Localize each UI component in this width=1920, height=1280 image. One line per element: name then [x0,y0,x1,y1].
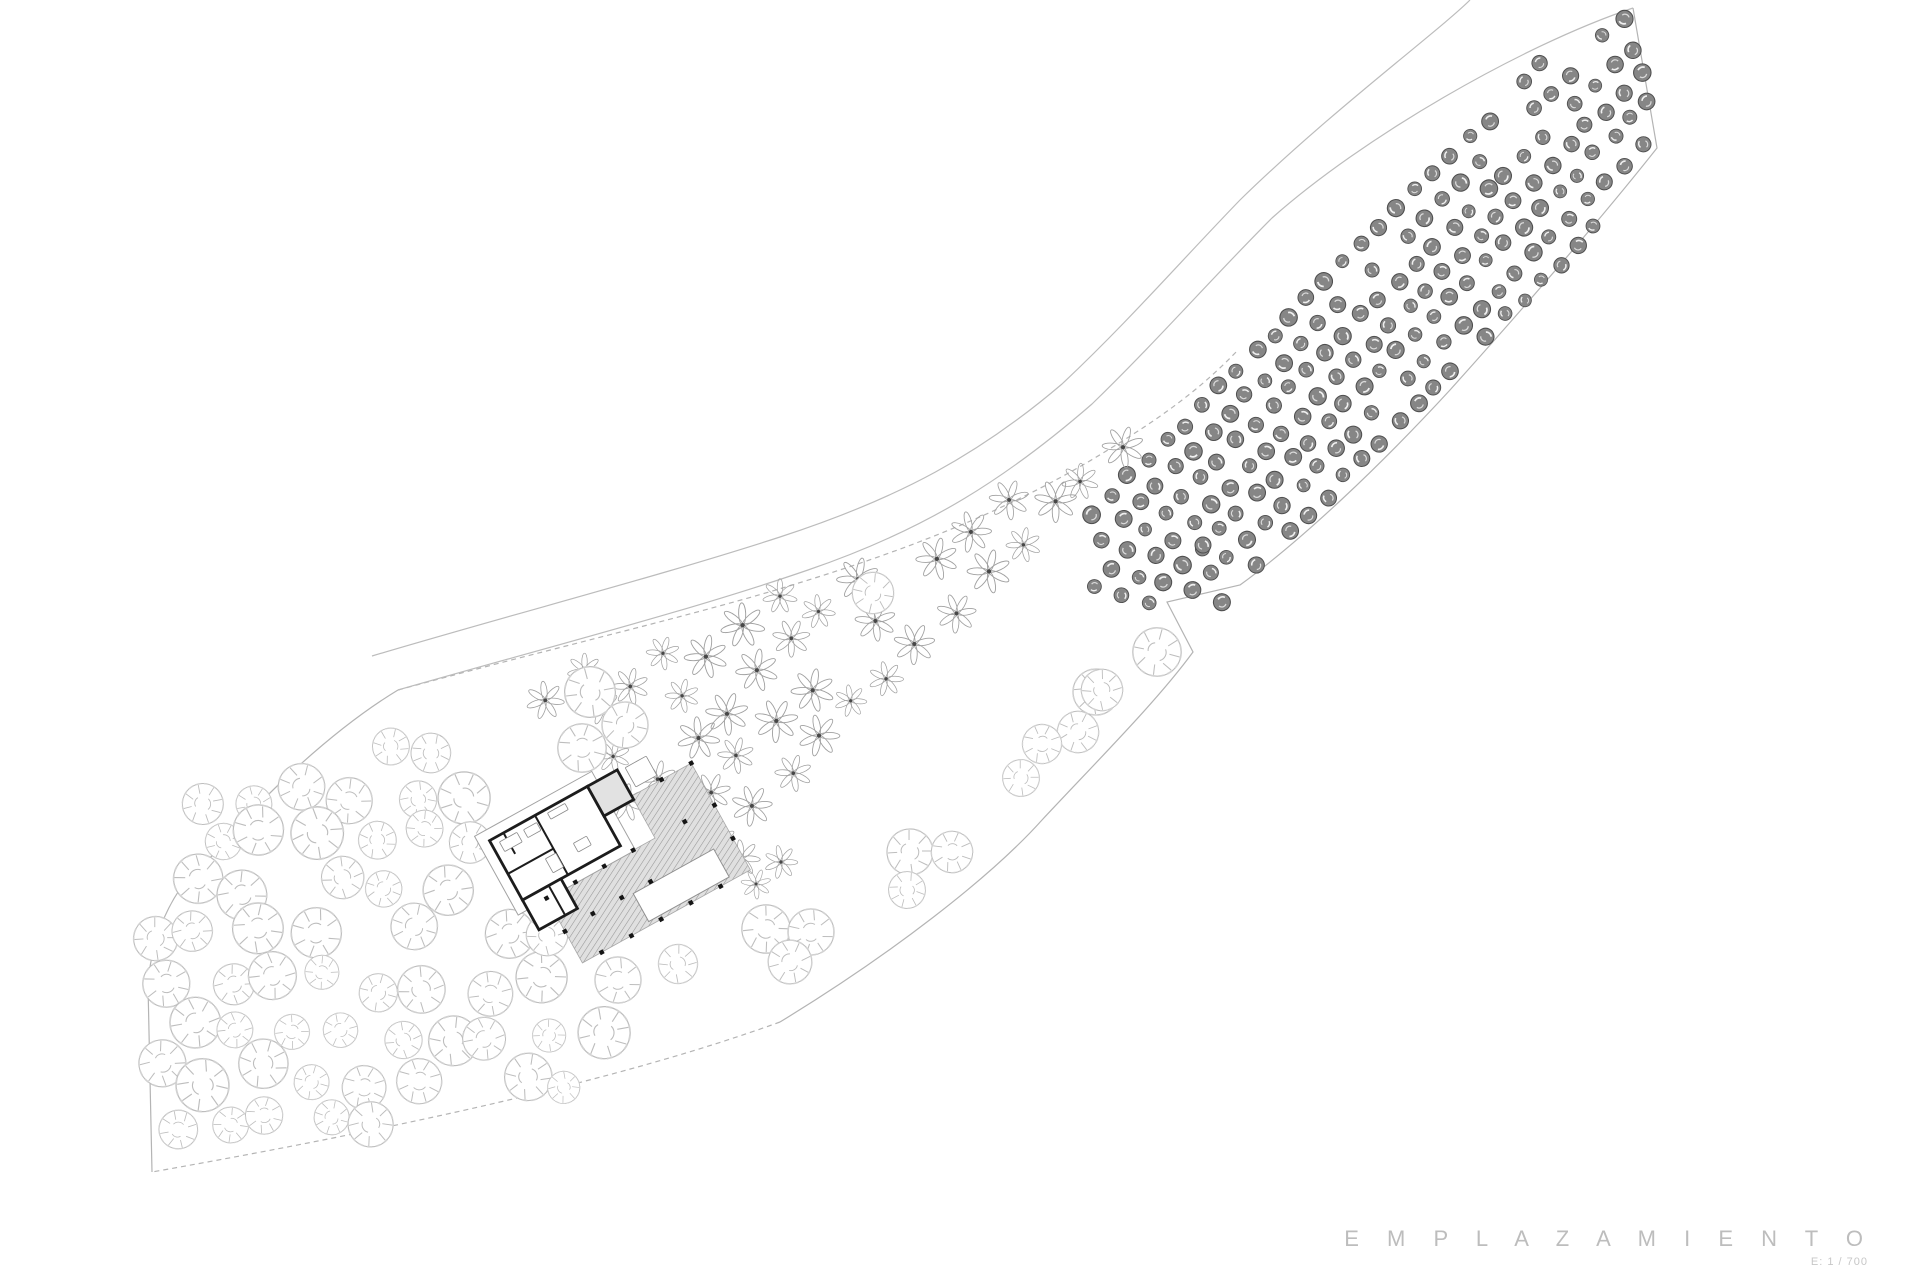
road-lower-edge [398,8,1633,690]
site-plan-canvas: E M P L A Z A M I E N T O E: 1 / 700 [0,0,1920,1280]
tree-symbol [1131,492,1151,512]
tree-symbol [1502,190,1524,212]
tree-symbol [1193,395,1212,414]
tree-symbol [1583,216,1603,236]
tree-symbol [1102,560,1120,578]
tree-symbol [1616,157,1634,175]
tree-symbol [554,720,609,775]
tree-symbol [1254,440,1278,464]
tree-symbol [1245,414,1266,435]
tree-symbol [569,998,639,1068]
tree-symbol [1145,476,1166,497]
tree-symbol [1140,594,1158,612]
tree-symbol [1280,521,1300,541]
tree-symbol [1422,163,1443,184]
tree-symbol [886,869,928,911]
tree-symbol [1220,478,1240,498]
tree-symbol [1277,305,1301,329]
tree-symbol [1226,361,1245,380]
drawing-title: E M P L A Z A M I E N T O [1344,1226,1874,1252]
tree-symbol [1265,397,1283,415]
tree-symbol [1505,264,1523,282]
olive-grove-dark-trees [1080,7,1657,612]
tree-symbol [175,1058,230,1113]
tree-symbol [1172,488,1190,506]
tree-symbol [318,1008,363,1053]
tree-symbol [733,646,781,694]
tree-symbol [1005,527,1041,563]
tree-symbol [1438,286,1461,309]
tree-symbol [1400,228,1417,245]
tree-symbol [704,691,751,737]
tree-symbol [1523,242,1544,263]
tree-symbol [844,564,902,622]
tree-symbol [1415,281,1435,301]
tree-symbol [1583,143,1601,161]
tree-symbol [1514,71,1535,92]
tree-symbol [958,541,1020,602]
tree-symbol [1162,529,1185,552]
tree-symbol [1562,67,1580,85]
site-inner-edge [398,350,1238,690]
tree-symbol [1167,457,1185,475]
tree-symbol [1470,152,1489,171]
tree-symbol [1217,548,1236,567]
tree-symbol [1406,325,1425,344]
tree-symbol [1524,98,1544,118]
tree-symbol [1153,572,1173,592]
tree-symbol [1621,108,1639,126]
tree-symbol [1245,554,1267,576]
tree-symbol [1207,374,1229,396]
tree-symbol [1307,456,1326,475]
tree-symbol [1472,226,1492,246]
tree-symbol [1183,581,1202,600]
tree-symbol [1482,113,1499,130]
tree-symbol [1406,180,1424,198]
tree-symbol [1363,333,1385,355]
tree-symbol [754,699,799,743]
tree-symbol [1427,309,1441,323]
tree-symbol [381,1017,427,1063]
tree-symbol [1255,512,1276,533]
vegetation-layer [125,7,1657,1156]
tree-symbol [1633,63,1651,81]
tree-symbol [1569,168,1584,183]
tree-symbol [1299,506,1319,526]
tree-symbol [243,1094,285,1136]
tree-symbol [1492,232,1514,254]
tree-symbol [1621,39,1644,62]
tree-symbol [930,586,984,640]
tree-symbol [891,620,939,669]
tree-symbol [1460,202,1478,220]
tree-symbol [352,966,405,1019]
tree-symbol [1282,446,1304,468]
tree-symbol [1435,333,1452,350]
tree-symbol [1320,489,1338,507]
tree-symbol [1353,449,1372,468]
tree-symbol [1370,361,1389,380]
tree-symbol [1137,522,1153,538]
tree-symbol [1267,328,1283,344]
tree-symbol [1308,386,1328,406]
tree-symbol [1542,155,1564,177]
tree-symbol [660,673,705,718]
tree-symbol [1102,486,1122,506]
tree-symbol [1595,101,1618,124]
tree-symbol [1516,292,1533,309]
tree-symbol [1334,253,1351,270]
tree-symbol [769,615,814,661]
tree-symbol [1606,126,1626,146]
tree-symbol [1421,236,1443,258]
tree-symbol [1246,482,1268,504]
tree-symbol [1605,54,1625,74]
tree-symbol [758,838,805,885]
tree-symbol [729,784,775,829]
tree-symbol [1385,339,1406,360]
tree-symbol [1114,509,1133,528]
tree-symbol [1225,429,1246,450]
tree-symbol [675,715,721,761]
tree-symbol [1552,183,1568,199]
tree-symbol [1370,435,1388,453]
tree-symbol [1345,352,1361,368]
tree-symbol [460,963,521,1024]
tree-symbol [1477,251,1495,269]
tree-symbol [1433,190,1451,208]
site-plan-drawing [0,0,1920,1280]
tree-symbol [1540,228,1558,246]
tree-symbol [1332,326,1353,347]
tree-symbol [1559,208,1580,229]
tree-symbol [287,904,345,962]
tree-symbol [1281,380,1295,394]
tree-symbol [1413,207,1436,230]
tree-symbol [1188,516,1202,530]
tree-symbol [1410,395,1427,412]
tree-symbol [1564,136,1580,152]
tree-symbol [1031,476,1082,527]
tree-symbol [1175,417,1195,437]
tree-symbol [1470,297,1494,321]
tree-symbol [1400,371,1415,386]
tree-symbol [1351,233,1372,254]
tree-symbol [1391,273,1408,290]
tree-symbol [1119,542,1136,559]
drawing-scale-label: E: 1 / 700 [1811,1256,1868,1268]
tree-symbol [1515,147,1533,165]
tree-symbol [715,598,769,653]
tree-symbol [317,852,368,903]
tree-symbol [1365,263,1380,278]
tree-symbol [1523,173,1544,194]
tree-symbol [1333,465,1352,484]
tree-symbol [1331,392,1354,415]
tree-symbol [1461,127,1479,145]
tree-symbol [1385,198,1406,219]
tree-symbol [1309,314,1327,332]
tree-symbol [359,864,409,914]
tree-symbol [1492,284,1506,298]
tree-symbol [1233,384,1255,406]
tree-symbol [1272,351,1296,375]
tree-symbol [1497,305,1514,322]
tree-symbol [1485,207,1505,227]
tree-symbol [1212,592,1232,612]
tree-symbol [1579,190,1597,208]
tree-symbol [1080,503,1103,526]
tree-symbol [1297,289,1315,307]
tree-symbol [1158,430,1178,450]
tree-symbol [1315,343,1335,363]
tree-symbol [287,1058,336,1107]
tree-symbol [1270,423,1291,444]
tree-symbol [1320,412,1338,430]
tree-symbol [355,818,400,863]
tree-symbol [1202,564,1220,582]
tree-symbol [1297,433,1319,455]
tree-symbol [1312,270,1336,294]
tree-symbol [1291,334,1310,353]
tree-symbol [1263,468,1287,492]
tree-symbol [1587,77,1604,94]
tree-symbol [1199,493,1222,516]
tree-symbol [1172,554,1193,575]
tree-symbol [1195,537,1211,553]
tree-symbol [1246,338,1270,362]
tree-symbol [1130,569,1148,587]
tree-symbol [795,589,842,635]
tree-symbol [1298,362,1313,377]
tree-symbol [1362,403,1381,422]
tree-symbol [1530,54,1548,72]
road-upper-edge [372,0,1470,656]
tree-symbol [1404,299,1418,313]
tree-symbol [787,665,838,715]
tree-symbol [945,507,996,557]
tree-symbol [1423,377,1444,398]
tree-symbol [681,631,732,681]
tree-symbol [1326,438,1346,458]
tree-symbol [1190,467,1210,487]
tree-symbol [715,735,757,776]
tree-symbol [244,947,301,1004]
tree-symbol [394,962,450,1018]
tree-symbol [657,943,699,985]
tree-symbol [1593,26,1611,44]
tree-symbol [1117,465,1136,484]
tree-symbol [1140,451,1159,470]
tree-symbol [1431,260,1453,282]
tree-symbol [524,679,567,721]
tree-symbol [1296,478,1310,492]
tree-symbol [1415,353,1432,370]
tree-symbol [1085,577,1104,596]
tree-symbol [1378,315,1399,336]
tree-symbol [1391,412,1409,430]
tree-symbol [828,678,873,723]
tree-symbol [1444,216,1466,238]
tree-symbol [1240,456,1260,476]
tree-symbol [1474,326,1496,348]
tree-symbol [1439,361,1460,382]
tree-symbol [1158,505,1174,521]
tree-symbol [1257,373,1272,388]
tree-symbol [1454,316,1473,335]
tree-symbol [1544,87,1559,102]
tree-symbol [1369,291,1386,308]
tree-symbol [772,752,815,794]
tree-symbol [1342,424,1364,446]
tree-symbol [1528,196,1552,220]
tree-symbol [1458,275,1475,292]
tree-symbol [1091,529,1113,551]
tree-symbol [1351,304,1370,323]
tree-symbol [526,1012,572,1058]
tree-symbol [1636,91,1657,112]
tree-symbol [1574,115,1594,135]
tree-symbol [1145,544,1167,566]
tree-symbol [794,711,844,760]
tree-symbol [1219,403,1241,425]
tree-symbol [1534,128,1552,146]
tree-symbol [1183,441,1205,463]
tree-symbol [1226,504,1246,524]
tree-symbol [862,655,911,704]
tree-symbol [407,729,455,777]
tree-symbol [1237,529,1258,550]
tree-symbol [1208,453,1226,471]
tree-symbol [1327,294,1349,316]
tree-symbol [1532,271,1550,289]
tree-symbol [642,631,685,674]
tree-symbol [1406,253,1427,274]
tree-symbol [1355,377,1374,396]
tree-symbol [1565,94,1585,114]
tree-symbol [1593,171,1615,193]
tree-symbol [1271,494,1293,516]
tree-symbol [1329,369,1345,385]
tree-symbol [1450,172,1470,192]
tree-symbol [1205,424,1222,441]
tree-symbol [1634,135,1653,154]
tree-symbol [1613,82,1634,103]
tree-symbol [1112,585,1132,605]
tree-symbol [1209,518,1229,538]
tree-symbol [503,1052,553,1102]
tree-symbol [987,477,1031,522]
tree-symbol [1453,246,1473,266]
tree-symbol [1369,218,1389,238]
tree-symbol [760,575,801,617]
tree-symbol [1438,145,1460,167]
tree-symbol [927,827,977,877]
tree-symbol [592,954,643,1005]
tree-symbol [1291,405,1314,428]
tree-symbol [1513,216,1536,239]
tree-symbol [370,726,411,767]
tree-symbol [232,902,284,954]
